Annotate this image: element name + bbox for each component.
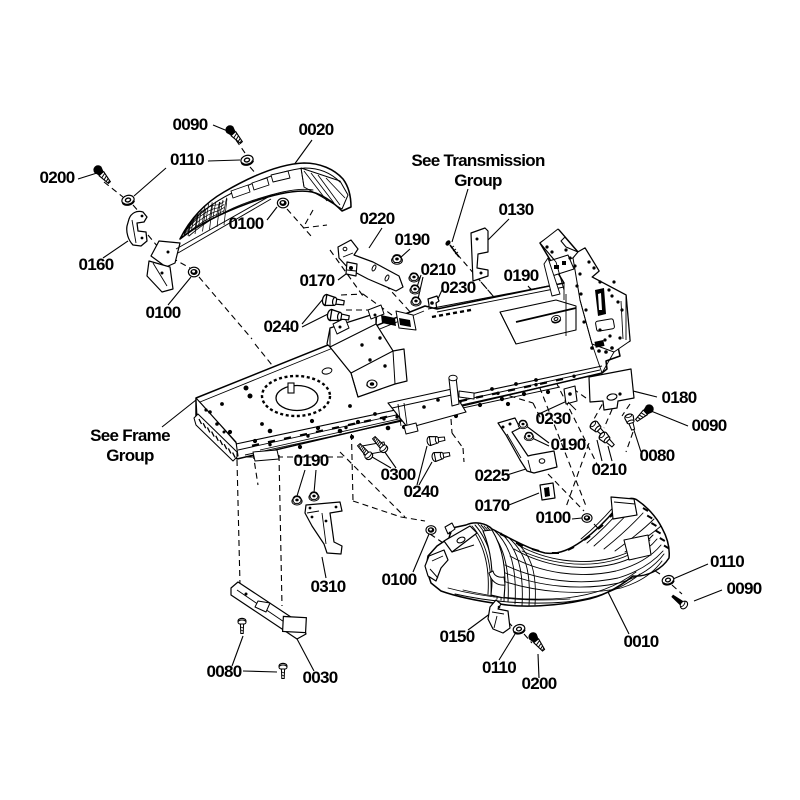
svg-text:0225: 0225 — [474, 466, 509, 485]
svg-text:0170: 0170 — [474, 496, 509, 515]
svg-text:0180: 0180 — [661, 388, 696, 407]
svg-text:See Frame: See Frame — [90, 426, 170, 445]
svg-text:Group: Group — [106, 446, 154, 465]
svg-text:Group: Group — [454, 171, 502, 190]
svg-text:0080: 0080 — [639, 446, 674, 465]
svg-text:0110: 0110 — [170, 150, 204, 169]
svg-text:0230: 0230 — [535, 409, 570, 428]
svg-text:0150: 0150 — [439, 627, 474, 646]
svg-text:0310: 0310 — [310, 577, 345, 596]
svg-text:0190: 0190 — [503, 266, 538, 285]
svg-text:0190: 0190 — [293, 451, 328, 470]
svg-text:0160: 0160 — [78, 255, 113, 274]
svg-text:0190: 0190 — [550, 435, 585, 454]
svg-text:0230: 0230 — [440, 278, 475, 297]
svg-text:0090: 0090 — [691, 416, 726, 435]
svg-text:0100: 0100 — [228, 214, 263, 233]
svg-text:0090: 0090 — [726, 579, 761, 598]
svg-text:0210: 0210 — [591, 460, 626, 479]
svg-text:0220: 0220 — [359, 209, 394, 228]
svg-text:0090: 0090 — [172, 115, 207, 134]
svg-text:0110: 0110 — [710, 552, 744, 571]
svg-text:0100: 0100 — [145, 303, 180, 322]
svg-text:0010: 0010 — [623, 632, 658, 651]
svg-text:0030: 0030 — [302, 668, 337, 687]
svg-text:0170: 0170 — [299, 271, 334, 290]
svg-text:0240: 0240 — [403, 482, 438, 501]
svg-text:0200: 0200 — [521, 674, 556, 693]
svg-text:0240: 0240 — [263, 317, 298, 336]
svg-text:0210: 0210 — [420, 260, 455, 279]
svg-text:0200: 0200 — [39, 168, 74, 187]
svg-text:0190: 0190 — [394, 230, 429, 249]
svg-text:0130: 0130 — [498, 200, 533, 219]
svg-text:See Transmission: See Transmission — [411, 151, 545, 170]
svg-text:0020: 0020 — [298, 120, 333, 139]
svg-text:0080: 0080 — [206, 662, 241, 681]
svg-text:0100: 0100 — [535, 508, 570, 527]
svg-text:0110: 0110 — [482, 658, 516, 677]
svg-text:0100: 0100 — [381, 570, 416, 589]
